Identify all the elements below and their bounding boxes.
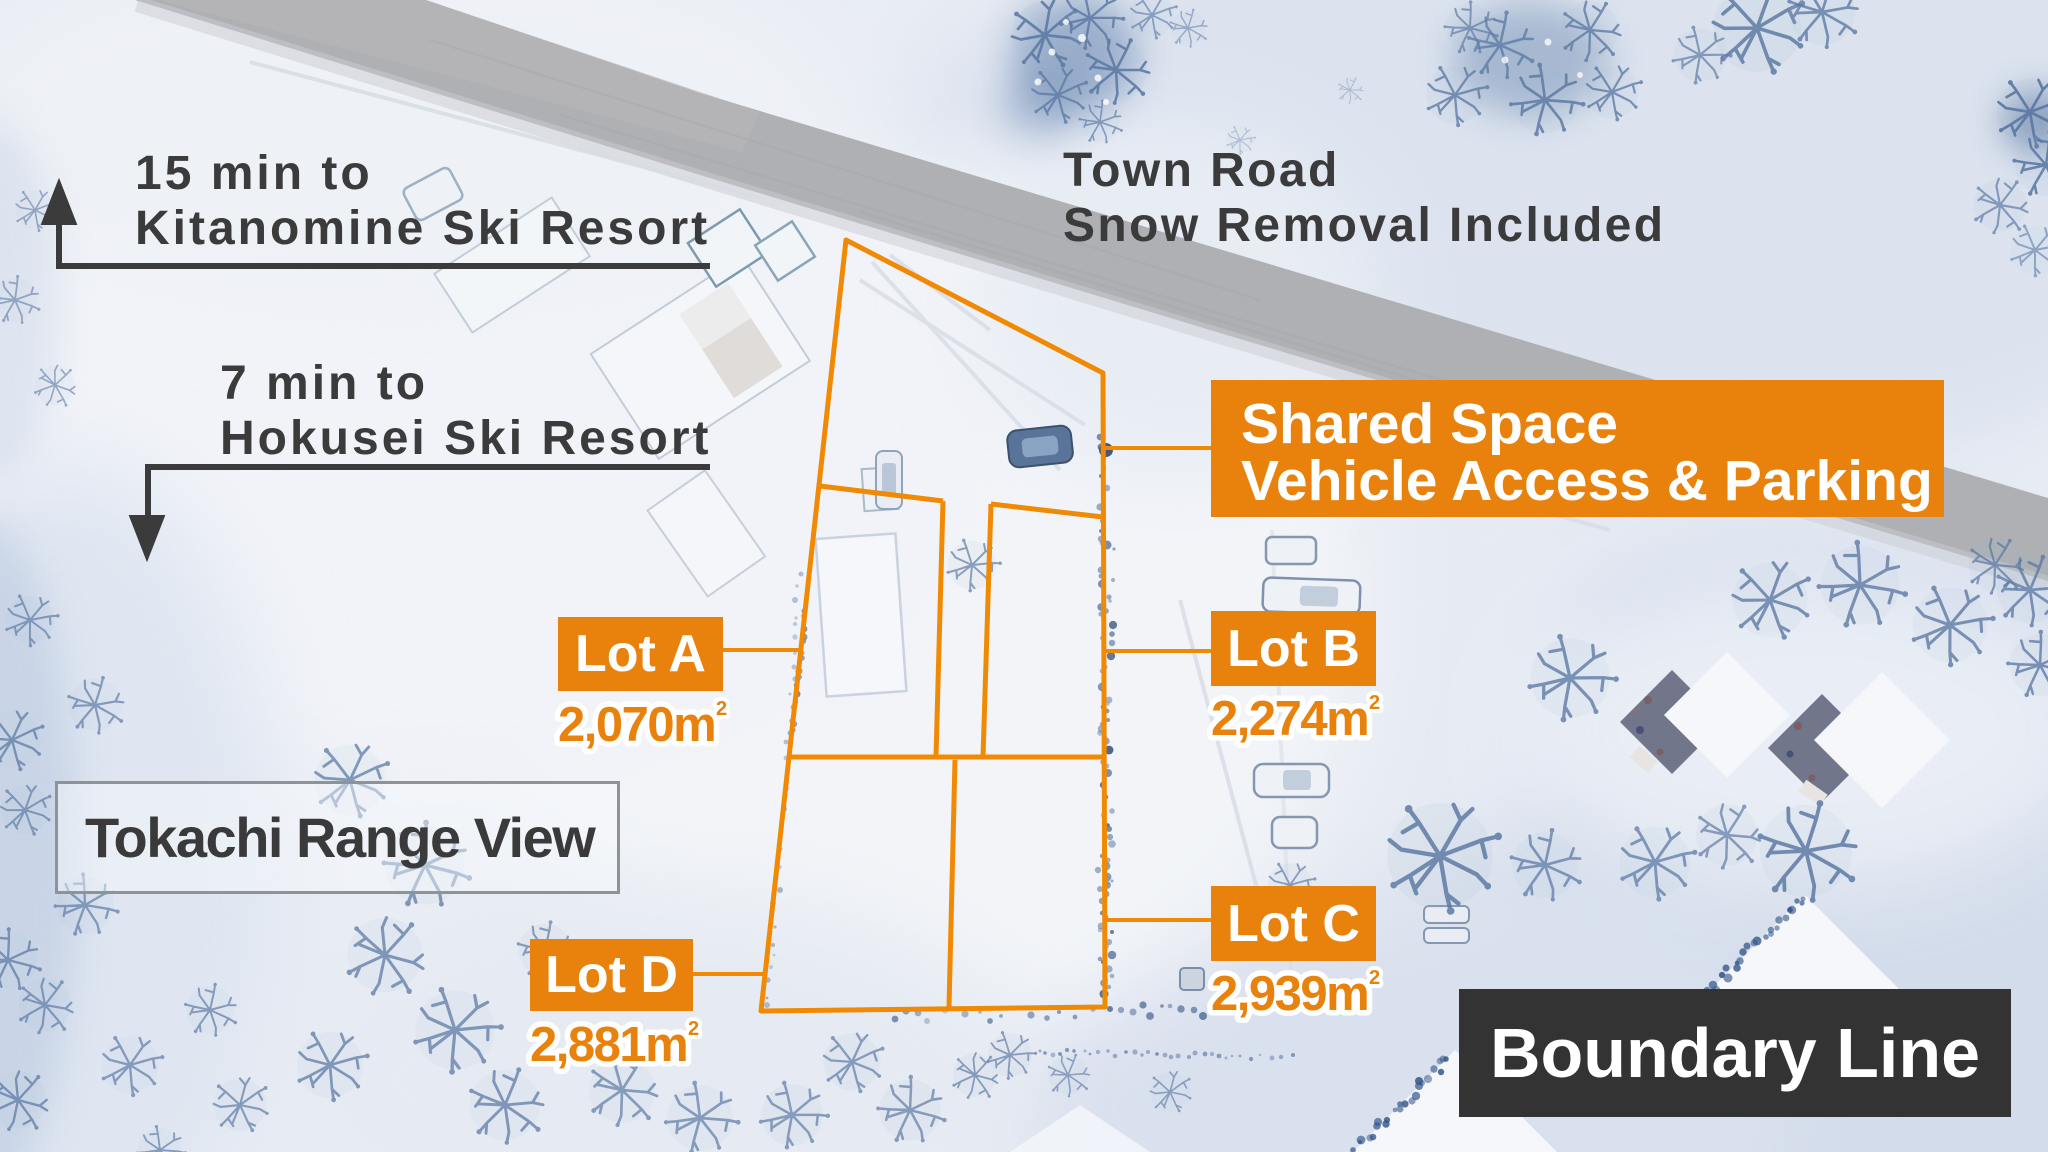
svg-text:2,939m: 2,939m	[1211, 967, 1368, 1021]
svg-text:2,881m: 2,881m	[530, 1018, 687, 1072]
svg-text:2: 2	[1369, 692, 1380, 714]
svg-text:2,070m: 2,070m	[558, 698, 715, 752]
svg-text:2: 2	[716, 698, 727, 720]
svg-text:2: 2	[688, 1018, 699, 1040]
svg-text:2,274m: 2,274m	[1211, 692, 1368, 746]
svg-text:2: 2	[1369, 967, 1380, 989]
